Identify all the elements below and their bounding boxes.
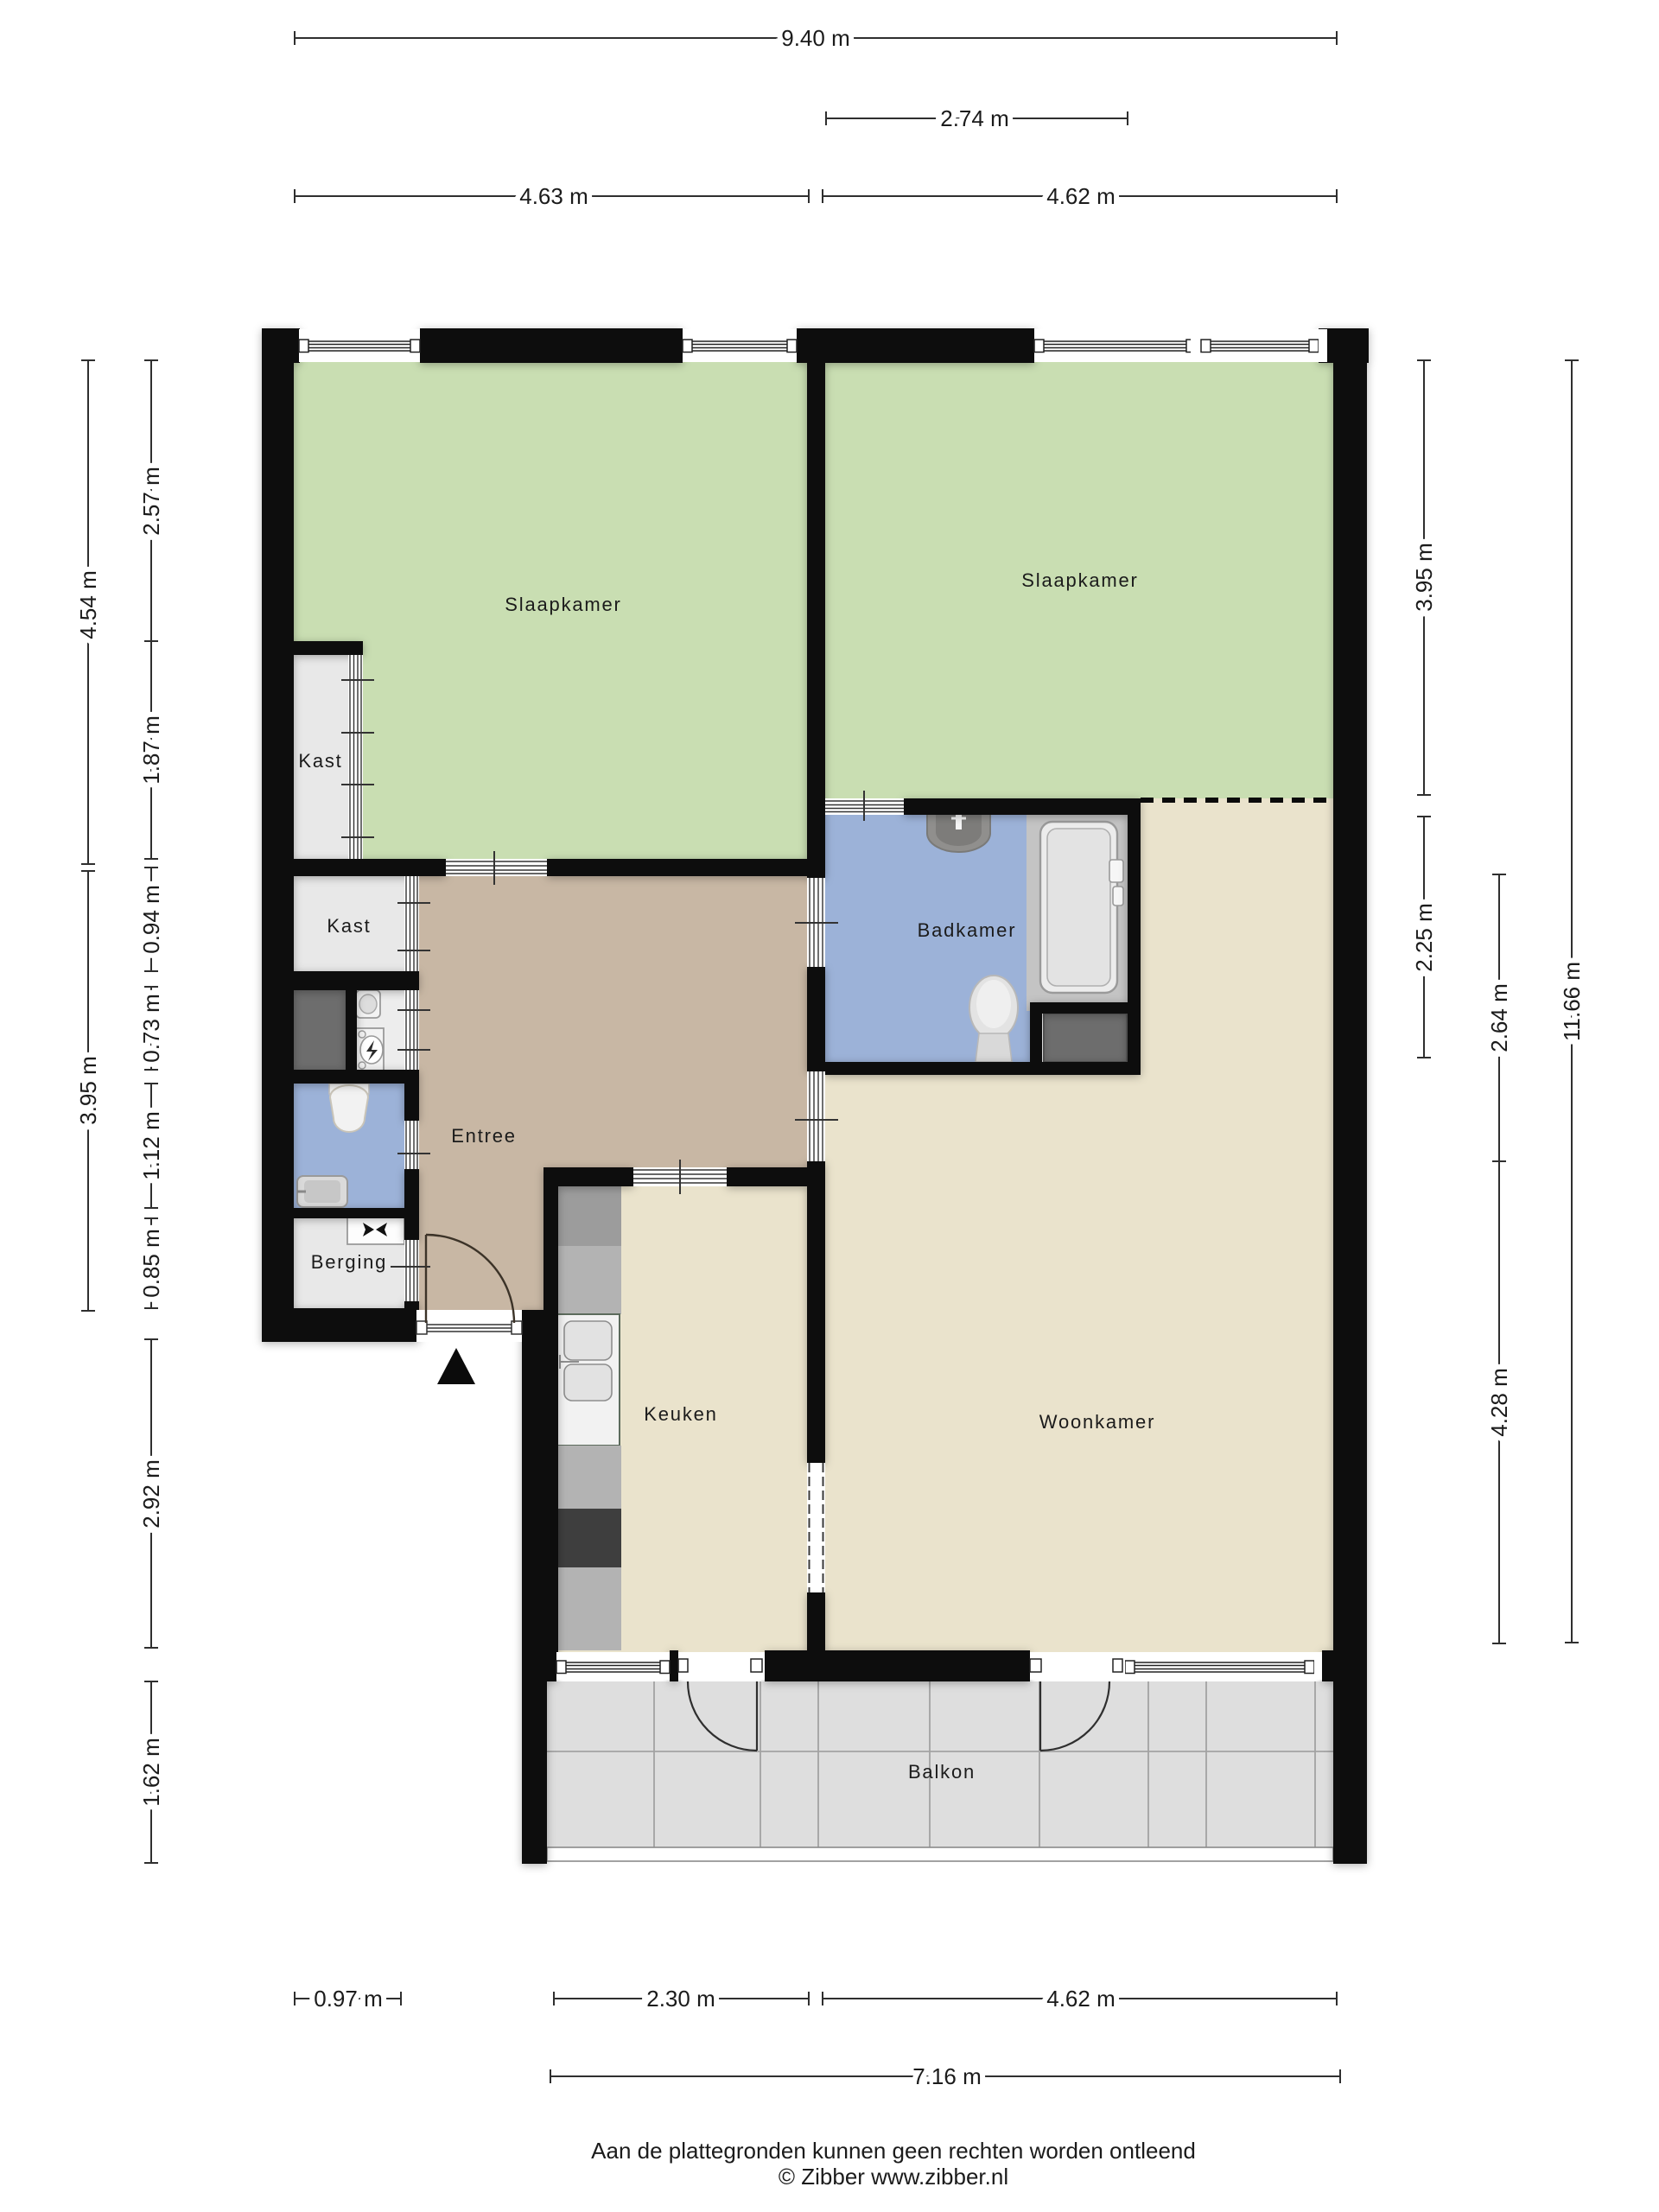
svg-text:Aan de plattegronden kunnen ge: Aan de plattegronden kunnen geen rechten… (591, 2138, 1196, 2164)
svg-text:Slaapkamer: Slaapkamer (505, 594, 621, 615)
svg-text:4.54 m: 4.54 m (75, 570, 101, 639)
svg-text:9.40 m: 9.40 m (781, 25, 850, 51)
svg-text:4.63 m: 4.63 m (519, 183, 588, 209)
svg-text:Balkon: Balkon (908, 1761, 976, 1783)
svg-text:Entree: Entree (451, 1125, 517, 1147)
svg-text:Keuken: Keuken (644, 1403, 717, 1425)
svg-text:4.28 m: 4.28 m (1486, 1368, 1512, 1437)
svg-text:3.95 m: 3.95 m (75, 1056, 101, 1125)
svg-text:Slaapkamer: Slaapkamer (1021, 569, 1138, 591)
svg-text:1.62 m: 1.62 m (138, 1738, 164, 1807)
svg-text:0.73 m: 0.73 m (138, 994, 164, 1063)
svg-text:Berging: Berging (311, 1251, 387, 1273)
svg-text:1.12 m: 1.12 m (138, 1111, 164, 1180)
svg-text:Kast: Kast (327, 915, 371, 937)
svg-text:4.62 m: 4.62 m (1046, 183, 1116, 209)
svg-text:0.94 m: 0.94 m (138, 885, 164, 954)
svg-text:2.30 m: 2.30 m (646, 1986, 715, 2012)
svg-text:2.74 m: 2.74 m (940, 105, 1009, 131)
svg-text:© Zibber www.zibber.nl: © Zibber www.zibber.nl (779, 2164, 1008, 2190)
svg-text:7.16 m: 7.16 m (912, 2063, 982, 2089)
svg-text:2.25 m: 2.25 m (1411, 903, 1437, 972)
svg-text:0.85 m: 0.85 m (138, 1229, 164, 1298)
svg-text:0.97 m: 0.97 m (314, 1986, 383, 2012)
svg-text:2.92 m: 2.92 m (138, 1459, 164, 1529)
svg-text:3.95 m: 3.95 m (1411, 543, 1437, 612)
svg-text:1.87 m: 1.87 m (138, 715, 164, 785)
svg-text:2.64 m: 2.64 m (1486, 983, 1512, 1052)
svg-text:Badkamer: Badkamer (918, 919, 1017, 941)
svg-text:4.62 m: 4.62 m (1046, 1986, 1116, 2012)
svg-text:Woonkamer: Woonkamer (1039, 1411, 1155, 1433)
svg-text:2.57 m: 2.57 m (138, 467, 164, 536)
svg-text:11.66 m: 11.66 m (1559, 962, 1585, 1041)
svg-text:Kast: Kast (298, 750, 342, 772)
